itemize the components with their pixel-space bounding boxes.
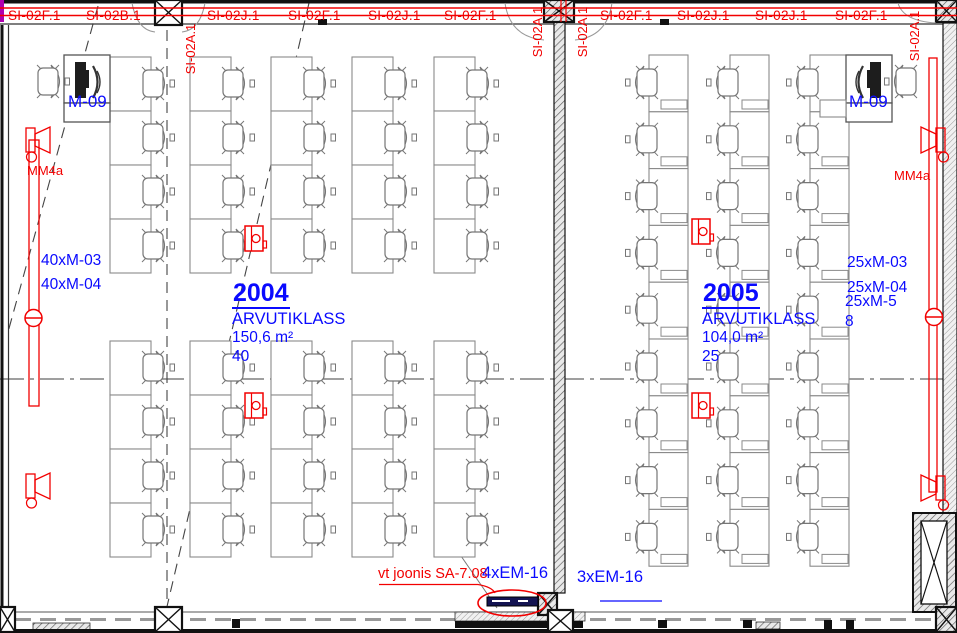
wall-bottom [0,612,957,633]
chair [142,459,175,492]
chair [787,520,820,553]
chair [707,123,740,156]
chair [466,67,499,100]
chair [142,513,175,546]
chair [707,520,740,553]
wall-left [2,25,9,632]
chair [626,123,659,156]
chair [384,67,417,100]
chair [707,407,740,440]
chair [222,459,255,492]
workstation-label-left: M-09 [68,93,107,110]
em-callout-right: 3xEM-16 [577,569,643,586]
chair [466,513,499,546]
cable-tray-label: SI-02F.1 [444,9,497,23]
chair [303,175,336,208]
workstation-label-right: M-09 [849,93,888,110]
chair [626,407,659,440]
chair [222,121,255,154]
chair [384,405,417,438]
chair [384,229,417,262]
cable-tray-label: SI-02J.1 [368,9,421,23]
chair [222,67,255,100]
structural-column [544,0,574,22]
chair [303,67,336,100]
chair [787,236,820,269]
teacher-desk-left [64,55,110,122]
shaft [913,513,956,612]
structural-column [155,0,182,25]
tray-riser-mark [0,0,4,22]
chair [787,464,820,497]
equipment-label: 25xM-5 [845,294,897,310]
floor-box-icon [245,226,267,251]
wall-system-label-left: MM4a [27,164,63,177]
chair [142,121,175,154]
cable-tray-label-vertical: SI-02A.1 [576,0,590,68]
floor-box-icon [245,393,267,418]
floor-box-icon [692,219,714,244]
chair [142,405,175,438]
chair [142,67,175,100]
chair [466,459,499,492]
structural-column [548,610,573,632]
chair [303,405,336,438]
floor-duct-callout [379,585,662,617]
room-type: ARVUTIKLASS [702,311,815,328]
chair [626,180,659,213]
wall-partition [554,21,565,593]
chair [222,175,255,208]
chair [787,350,820,383]
chair [707,66,740,99]
equipment-label: 25xM-03 [847,255,907,271]
chair [303,513,336,546]
room-capacity: 40 [232,349,249,365]
cable-tray-label: SI-02J.1 [207,9,260,23]
structural-column [0,607,15,632]
equipment-label: 8 [845,314,854,330]
cable-tray-label-vertical: SI-02A.1 [184,13,198,85]
room-number: 2005 [702,281,760,309]
room-type: ARVUTIKLASS [232,311,345,328]
equipment-label: 40xM-03 [41,253,101,269]
floorplan-viewport: SI-02F.1 SI-02B.1 SI-02J.1 SI-02F.1 SI-0… [0,0,957,633]
chair [707,464,740,497]
chair [466,121,499,154]
tray-riser-left [25,140,42,406]
cable-tray-label-vertical: SI-02A.1 [908,0,922,72]
chair [626,66,659,99]
cable-tray-label-vertical: SI-02A.1 [531,0,545,68]
cable-tray-label: SI-02J.1 [677,9,730,23]
chair [384,513,417,546]
chair [707,180,740,213]
chair [466,229,499,262]
tray-riser-right [925,58,943,492]
structural-column [936,0,957,22]
chair [303,121,336,154]
room-area: 150,6 m² [232,330,293,346]
cable-tray-label: SI-02J.1 [755,9,808,23]
wall-right [943,23,957,513]
chair [787,123,820,156]
chair [384,175,417,208]
wall-system-label-right: MM4a [894,169,930,182]
chair [626,464,659,497]
chair [626,236,659,269]
chair [787,180,820,213]
room-capacity: 25 [702,349,719,365]
cable-tray-label: SI-02F.1 [288,9,341,23]
chair [303,459,336,492]
chair [384,459,417,492]
equipment-label: 40xM-04 [41,277,101,293]
cable-tray-label: SI-02F.1 [600,9,653,23]
chair [626,520,659,553]
drawing-reference-note: vt joonis SA-7.08 [378,567,488,582]
chair [222,513,255,546]
chair [626,350,659,383]
chair [466,405,499,438]
chair [142,229,175,262]
chair [142,175,175,208]
structural-column [155,607,182,632]
cable-tray-label: SI-02F.1 [835,9,888,23]
chair [466,175,499,208]
cable-tray-label: SI-02F.1 [8,9,61,23]
cable-tray-label: SI-02B.1 [86,9,141,23]
room-area: 104,0 m² [702,330,763,346]
em-callout-left: 4xEM-16 [482,565,548,582]
chair [384,121,417,154]
chair [303,229,336,262]
speaker-icon [26,473,50,508]
floor-box-icon [692,393,714,418]
chair [787,407,820,440]
chair [626,293,659,326]
chair [787,66,820,99]
structural-column [936,607,957,632]
room-number: 2004 [232,281,290,309]
